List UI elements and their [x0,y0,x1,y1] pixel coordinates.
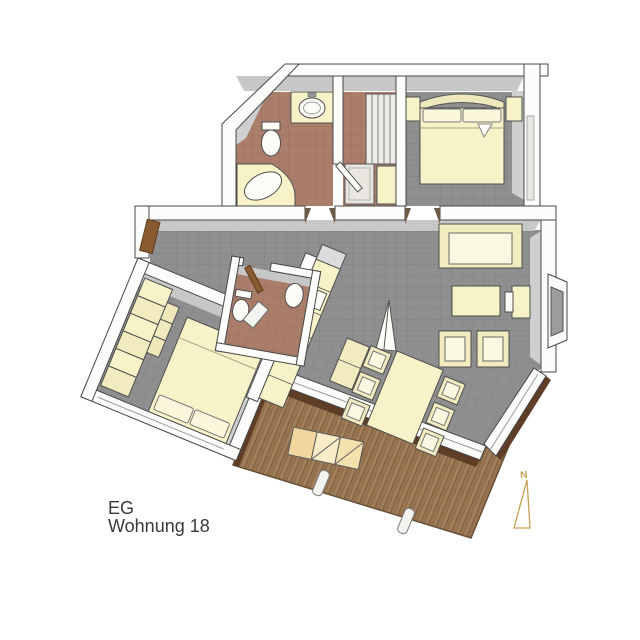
partition-hall-bedroom [396,76,406,206]
armchair [439,331,471,367]
bathroom-2 [215,256,320,366]
bedroom-1-furniture [404,94,522,184]
north-arrow-needle [514,480,530,528]
sofa [439,224,522,268]
toilet-tank [262,122,280,130]
nightstand [506,97,522,121]
armchair [477,331,509,367]
coffee-table [452,286,500,316]
pillow [463,109,501,122]
toilet-icon [262,130,281,156]
pillow [423,109,461,122]
north-arrow-letter: N [520,470,528,482]
sink-icon [299,98,325,118]
plan-label: EG Wohnung 18 [108,498,210,536]
tv-icon [505,292,513,312]
north-arrow: N [514,470,530,528]
floor-plan-page: N EG Wohnung 18 [0,0,640,640]
bay-window [548,274,567,348]
floor-label: EG [108,498,134,518]
window [527,116,534,200]
floor-plan: N EG Wohnung 18 [0,0,640,640]
apartment-label: Wohnung 18 [108,516,210,536]
partition-bath-hall [333,76,343,164]
stairs [366,94,398,164]
tv-sideboard [512,286,530,318]
